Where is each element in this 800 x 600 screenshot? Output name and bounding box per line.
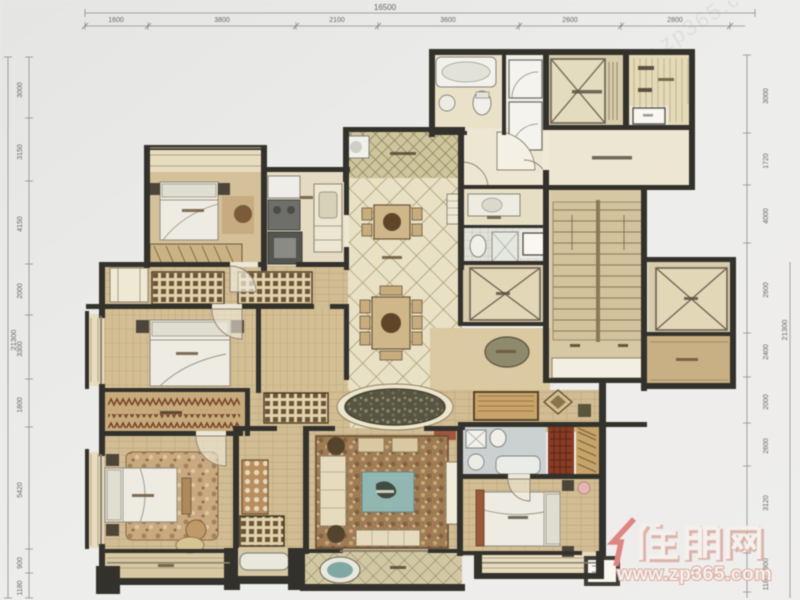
svg-text:3000: 3000 xyxy=(17,82,24,98)
svg-text:3150: 3150 xyxy=(17,144,24,160)
svg-text:1600: 1600 xyxy=(108,17,124,24)
svg-text:2000: 2000 xyxy=(17,283,24,299)
svg-text:3300: 3300 xyxy=(17,341,24,357)
svg-text:2600: 2600 xyxy=(562,17,578,24)
svg-text:3120: 3120 xyxy=(763,495,770,511)
svg-text:www.zp365.com: www.zp365.com xyxy=(616,563,772,585)
svg-text:2600: 2600 xyxy=(763,282,770,298)
svg-text:1720: 1720 xyxy=(763,153,770,169)
svg-text:900: 900 xyxy=(17,557,24,569)
svg-text:4000: 4000 xyxy=(763,208,770,224)
svg-text:2400: 2400 xyxy=(763,344,770,360)
svg-text:1800: 1800 xyxy=(17,397,24,413)
svg-text:2100: 2100 xyxy=(329,17,345,24)
svg-text:4150: 4150 xyxy=(17,216,24,232)
svg-text:1180: 1180 xyxy=(17,580,24,595)
svg-text:3800: 3800 xyxy=(214,17,230,24)
svg-text:21300: 21300 xyxy=(780,320,789,341)
svg-text:2600: 2600 xyxy=(763,438,770,454)
svg-text:3000: 3000 xyxy=(763,88,770,104)
svg-text:2800: 2800 xyxy=(667,17,683,24)
svg-text:2000: 2000 xyxy=(763,394,770,410)
svg-text:3600: 3600 xyxy=(440,17,456,24)
svg-text:16500: 16500 xyxy=(374,3,397,12)
svg-text:5420: 5420 xyxy=(17,482,24,498)
